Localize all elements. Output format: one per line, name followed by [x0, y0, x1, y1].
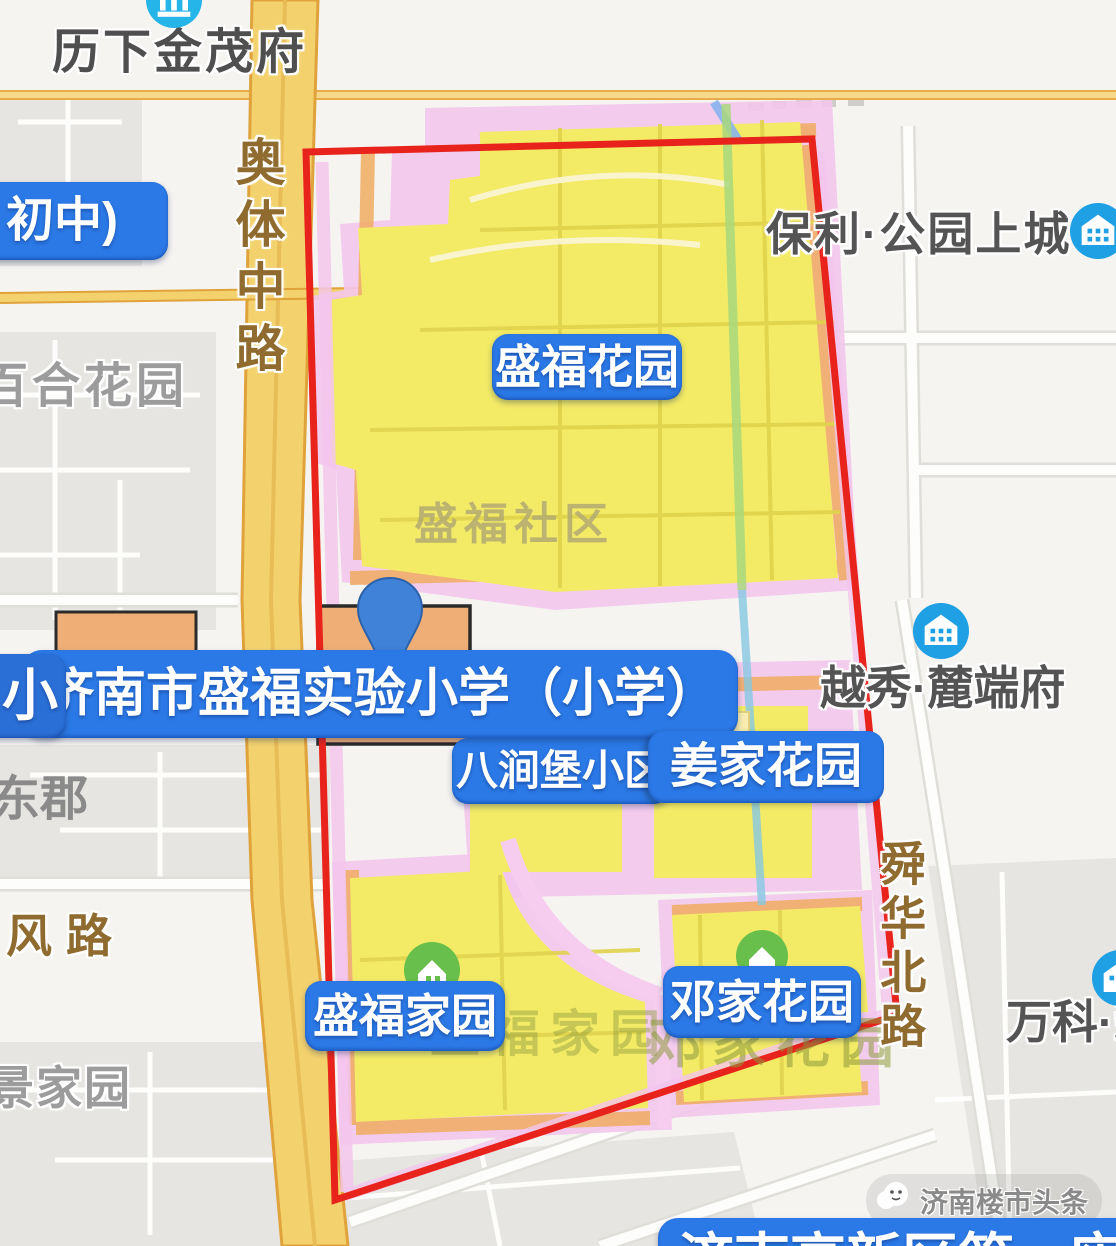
badge-shengfu-jiayuan[interactable]: 盛福家园: [305, 981, 505, 1051]
badge-bajianpu[interactable]: 八涧堡小区: [452, 738, 670, 804]
badge-school[interactable]: 济南市盛福实验小学（小学）: [22, 650, 738, 738]
label-shunhua-road: 舜华北路: [876, 840, 924, 1056]
badge-school-fragment[interactable]: 小: [0, 654, 66, 738]
label-dongjun: 东郡: [0, 775, 88, 825]
label-feng-road: 风路: [6, 912, 126, 960]
badge-jiangjia[interactable]: 姜家花园: [648, 731, 884, 803]
label-aoti-road: 奥体中路: [230, 136, 283, 384]
label-shengfu-shequ: 盛福社区: [414, 502, 614, 548]
building-block: [56, 612, 196, 652]
watermark-text: 济南楼市头条: [920, 1181, 1088, 1221]
badge-dengjia[interactable]: 邓家花园: [663, 966, 861, 1038]
badge-chuzhong[interactable]: 初中): [0, 182, 168, 260]
label-baihe: 百合花园: [0, 362, 188, 412]
building-poi-icon[interactable]: [1070, 203, 1116, 264]
label-baoli: 保利·公园上城: [766, 210, 1071, 258]
label-jingjiayuan: 景家园: [0, 1064, 132, 1112]
building-poi-icon[interactable]: [913, 603, 969, 664]
building-poi-icon[interactable]: [1092, 950, 1116, 1011]
bank-poi-icon[interactable]: [146, 0, 202, 33]
watermark-logo-icon: [872, 1178, 912, 1223]
label-lixia-jinmao: 历下金茂府: [52, 28, 307, 78]
badge-shengfu-huayuan[interactable]: 盛福花园: [492, 334, 682, 400]
label-yuexiu: 越秀·麓端府: [820, 664, 1065, 712]
map-screenshot: 邓家花园 盛福家园 历下金茂府 奥体中路 百合花园 保利·公园上城 盛福社区 越…: [0, 0, 1116, 1246]
badge-bottom-school[interactable]: 济南高新区第一实验学校: [658, 1218, 1116, 1246]
